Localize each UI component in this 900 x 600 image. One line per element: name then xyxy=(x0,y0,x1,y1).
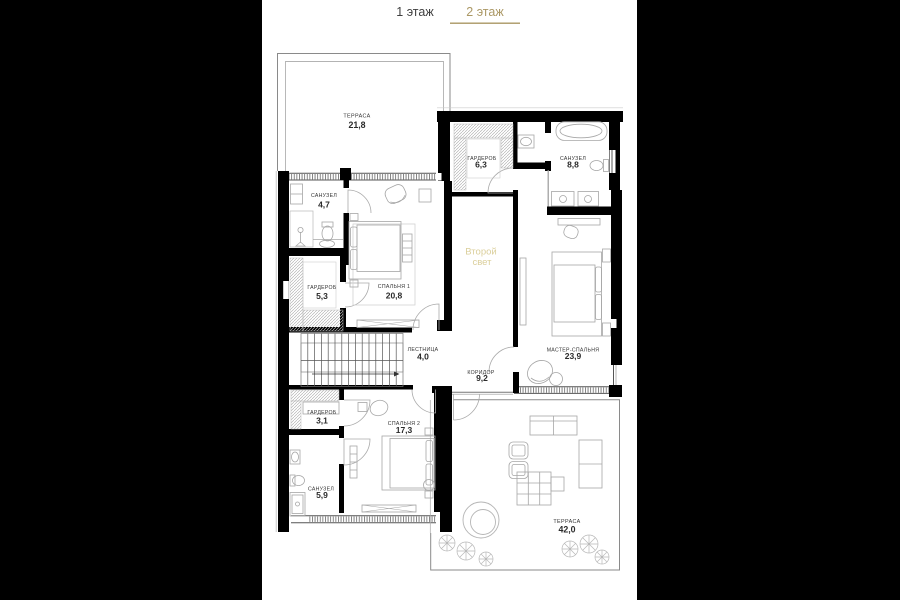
svg-text:20,8: 20,8 xyxy=(386,291,403,301)
svg-text:1 этаж: 1 этаж xyxy=(396,5,434,19)
svg-text:42,0: 42,0 xyxy=(558,525,575,535)
svg-text:свет: свет xyxy=(472,257,492,268)
svg-text:5,9: 5,9 xyxy=(316,490,328,500)
svg-text:СПАЛЬНЯ 1: СПАЛЬНЯ 1 xyxy=(378,284,410,290)
svg-text:8,8: 8,8 xyxy=(567,160,579,170)
svg-text:4,7: 4,7 xyxy=(318,200,330,210)
svg-text:6,3: 6,3 xyxy=(475,160,487,170)
svg-text:САНУЗЕЛ: САНУЗЕЛ xyxy=(311,193,337,199)
svg-text:4,0: 4,0 xyxy=(417,352,429,362)
svg-text:17,3: 17,3 xyxy=(396,425,413,435)
svg-text:5,3: 5,3 xyxy=(316,291,328,301)
svg-text:2 этаж: 2 этаж xyxy=(466,5,504,19)
svg-text:9,2: 9,2 xyxy=(476,373,488,383)
svg-text:21,8: 21,8 xyxy=(348,120,365,130)
svg-text:ТЕРРАСА: ТЕРРАСА xyxy=(343,114,370,120)
svg-text:Второй: Второй xyxy=(465,247,496,258)
svg-text:3,1: 3,1 xyxy=(316,416,328,426)
svg-text:23,9: 23,9 xyxy=(565,351,582,361)
